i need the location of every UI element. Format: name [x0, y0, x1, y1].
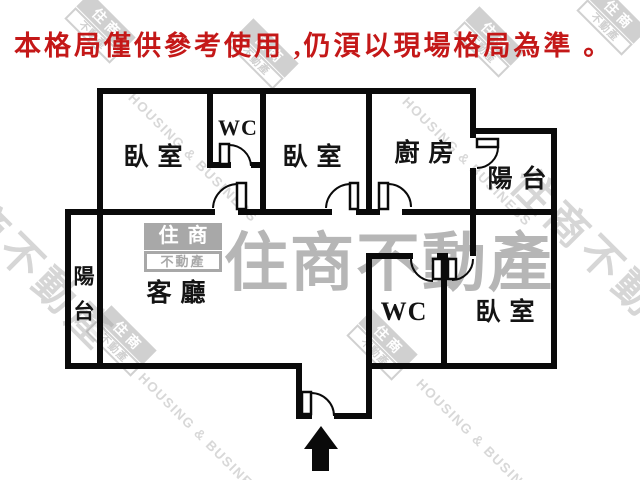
door-wc-bottom: [411, 259, 442, 281]
wall: [366, 88, 372, 215]
label-wc-bottom: WC: [381, 297, 428, 327]
wall: [97, 88, 103, 215]
wall: [207, 88, 213, 168]
wall: [366, 253, 372, 419]
label-bedroom-top-middle: 臥室: [273, 137, 350, 173]
wall: [470, 128, 557, 134]
wall: [97, 88, 476, 94]
floorplan-drawing: [0, 0, 640, 480]
door-kitchen: [379, 183, 411, 209]
label-wc-top: WC: [218, 115, 258, 141]
wall: [372, 253, 413, 259]
wall: [260, 88, 266, 215]
wall: [356, 209, 380, 215]
wall: [65, 209, 215, 215]
label-balcony-right: 陽台: [478, 159, 555, 195]
entrance-arrow-icon: [304, 426, 338, 471]
label-balcony-left: 陽台: [68, 265, 98, 335]
wall: [402, 209, 557, 215]
label-living-room: 客廳: [137, 273, 214, 309]
disclaimer-text: 本格局僅供參考使用 ,仍湏以現場格局為準 。: [14, 24, 634, 63]
wall: [366, 363, 557, 369]
door-entrance: [302, 392, 334, 416]
doors: [213, 139, 498, 416]
door-bedroom-top-left: [213, 183, 246, 209]
door-bedroom-top-middle: [326, 183, 358, 209]
floorplan-image: 本格局僅供參考使用 ,仍湏以現場格局為準 。 住商不動產 住商 不動產 HOUS…: [0, 0, 640, 480]
door-bedroom-right: [448, 259, 473, 280]
wall: [65, 363, 302, 369]
door-wc-top: [220, 144, 251, 166]
label-kitchen: 廚房: [385, 133, 462, 169]
label-bedroom-top-left: 臥室: [114, 137, 191, 173]
label-bedroom-right: 臥室: [466, 292, 543, 328]
wall: [238, 209, 332, 215]
